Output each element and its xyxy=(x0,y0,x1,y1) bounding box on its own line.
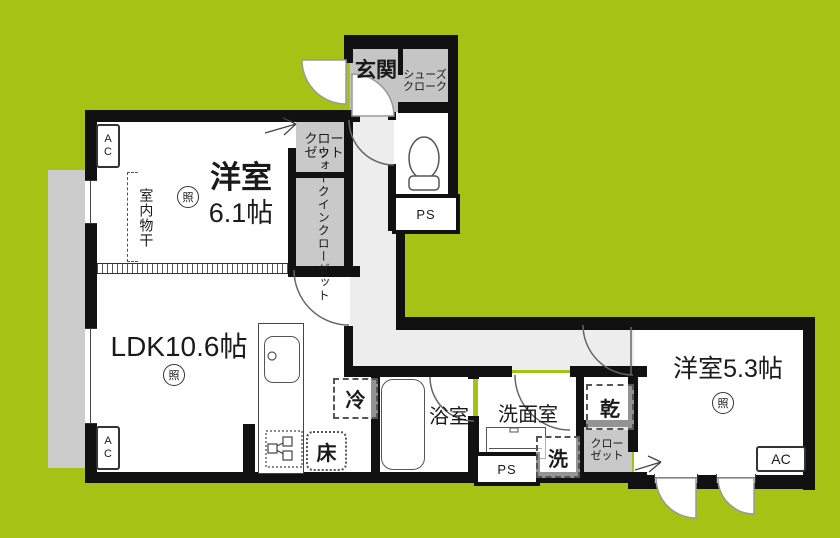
refrigerator-space: 冷 xyxy=(333,378,378,419)
wall xyxy=(85,110,360,122)
window xyxy=(654,474,698,483)
light-symbol: 照 xyxy=(712,392,734,414)
floor-storage: 床 xyxy=(306,431,347,471)
kitchen-sink-icon xyxy=(264,336,300,383)
refrigerator-label: 冷 xyxy=(346,384,366,413)
shoes-closet-line2: クローク xyxy=(403,82,447,94)
ac-label: AC xyxy=(771,451,790,467)
window xyxy=(716,474,756,483)
wall xyxy=(396,229,405,330)
ac-label: C xyxy=(104,146,112,159)
wall xyxy=(388,112,396,120)
wall xyxy=(344,35,458,49)
washer-label: 洗 xyxy=(548,443,568,472)
ac-label: A xyxy=(104,435,111,448)
light-symbol: 照 xyxy=(177,186,199,208)
ldk-label: LDK10.6帖 xyxy=(98,330,260,364)
hallway-horizontal-floor xyxy=(350,328,638,370)
ps-label: PS xyxy=(497,462,516,477)
light-symbol: 照 xyxy=(163,364,185,386)
floor-plan: A C A C AC PS PS 冷 洗 乾 床 室内物干 玄関 シューズ クロ… xyxy=(0,0,840,538)
closet-line2: ゼット xyxy=(591,451,624,463)
ac-unit-badge: A C xyxy=(96,124,120,168)
dryer-space: 乾 xyxy=(586,384,634,430)
window xyxy=(85,328,97,424)
wall xyxy=(396,317,815,330)
shoes-closet-label: シューズ クローク xyxy=(400,66,450,98)
wall xyxy=(243,424,255,472)
sliding-partition xyxy=(97,263,288,274)
wall xyxy=(398,102,450,113)
bedroom2-label: 洋室5.3帖 xyxy=(658,352,798,386)
bedroom1-name-label: 洋室 xyxy=(198,160,284,196)
ac-unit-badge: AC xyxy=(756,446,806,472)
floor-storage-label: 床 xyxy=(317,437,337,466)
ac-label: C xyxy=(104,448,112,461)
dryer-label: 乾 xyxy=(600,393,620,422)
toilet-floor xyxy=(394,112,450,196)
closet-line1: クロー xyxy=(304,132,343,146)
window xyxy=(85,180,97,224)
closet2-label: クロー ゼット xyxy=(584,430,630,472)
wall xyxy=(468,373,479,379)
light-label: 照 xyxy=(169,367,180,383)
washbasin-counter-line xyxy=(489,448,542,449)
wall xyxy=(288,148,296,268)
bathtub-icon xyxy=(381,379,425,470)
walk-in-closet-label: ウォークインクローゼット xyxy=(300,181,346,267)
indoor-laundry-label: 室内物干 xyxy=(136,172,156,264)
washer-space: 洗 xyxy=(536,436,580,478)
pipe-shaft-badge: PS xyxy=(392,194,460,234)
washroom-label: 洗面室 xyxy=(482,402,574,428)
pipe-shaft-badge: PS xyxy=(474,452,540,486)
light-label: 照 xyxy=(718,395,729,411)
ps-label: PS xyxy=(416,207,435,222)
entrance-door-swing xyxy=(302,60,346,104)
ac-label: A xyxy=(104,133,111,146)
light-label: 照 xyxy=(183,189,194,205)
bathroom-label: 浴室 xyxy=(424,404,474,430)
bedroom1-size-label: 6.1帖 xyxy=(198,197,284,229)
balcony-floor xyxy=(48,170,88,468)
entrance-label: 玄関 xyxy=(350,56,402,86)
ac-unit-badge: A C xyxy=(96,426,120,470)
